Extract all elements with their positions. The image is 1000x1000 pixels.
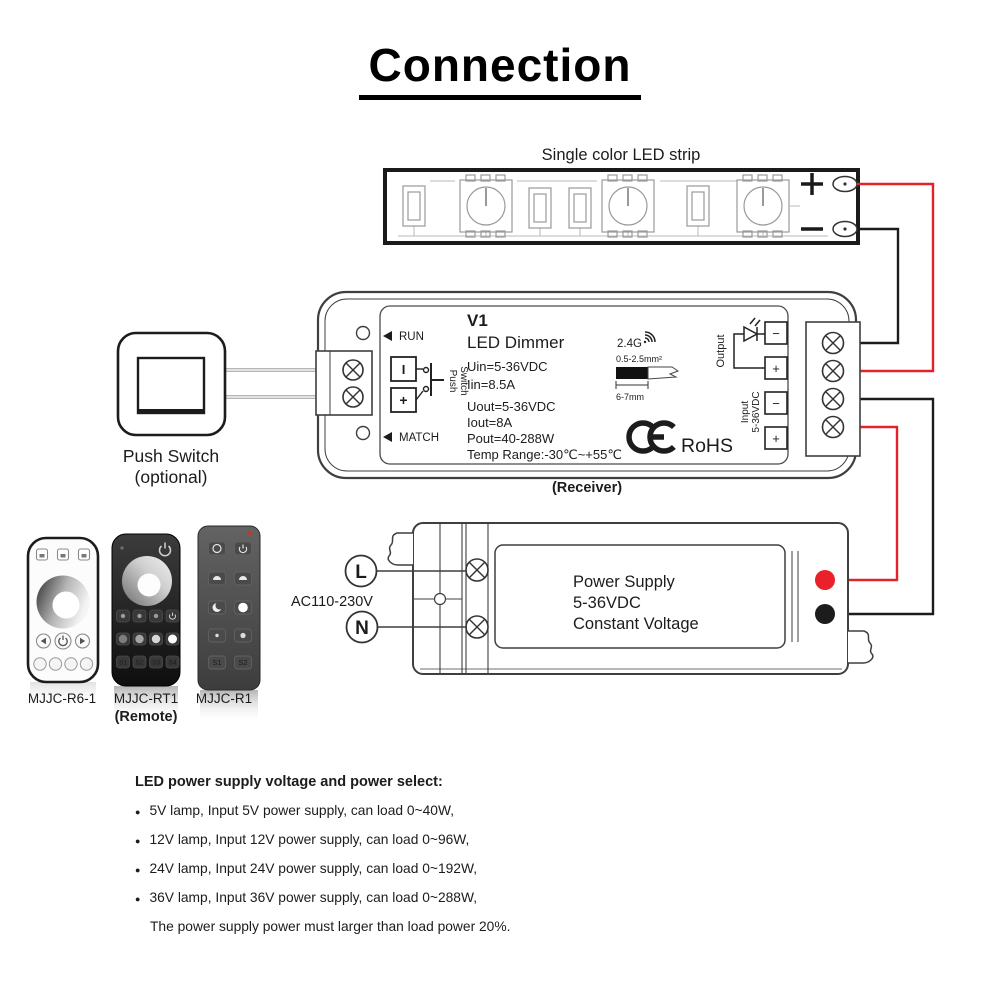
input-label: Input xyxy=(740,401,751,423)
bullet-icon: ● xyxy=(135,807,140,817)
notes-section: LED power supply voltage and power selec… xyxy=(135,774,755,934)
run-label: RUN xyxy=(399,331,424,343)
notes-heading: LED power supply voltage and power selec… xyxy=(135,774,755,790)
rohs-label: RoHS xyxy=(681,435,733,457)
notes-footer: The power supply power must larger than … xyxy=(150,919,755,934)
screw-terminal-icon xyxy=(343,360,363,380)
indicator-dot xyxy=(248,531,252,535)
switch-plus-label: + xyxy=(399,392,407,408)
note-text: 36V lamp, Input 36V power supply, can lo… xyxy=(149,890,477,905)
dim-wheel-center xyxy=(53,592,80,619)
screw-terminal-icon xyxy=(466,559,488,581)
note-text: 12V lamp, Input 12V power supply, can lo… xyxy=(149,832,469,847)
remote-r1-model: MJJC-R1 xyxy=(196,691,252,706)
mounting-hole xyxy=(357,427,370,440)
output-minus: − xyxy=(772,326,780,341)
bullet-icon: ● xyxy=(135,894,140,904)
full-brightness-icon xyxy=(238,603,248,613)
control-buttons xyxy=(37,633,90,649)
remote-rt1: S1 S2 S3 S4 MJJC-RT1 (Remote) xyxy=(112,534,180,725)
note-item: ● 24V lamp, Input 24V power supply, can … xyxy=(135,861,755,876)
spec-iin: Iin=8.5A xyxy=(467,377,515,392)
ps-line3: Constant Voltage xyxy=(573,615,699,633)
remote-r6-1-model: MJJC-R6-1 xyxy=(28,691,96,706)
remote-r6-1: MJJC-R6-1 xyxy=(28,538,98,706)
strain-relief-icon xyxy=(388,533,413,565)
led-strip-label: Single color LED strip xyxy=(542,146,701,164)
output-label: Output xyxy=(715,334,727,367)
wire-gauge-label: 0.5-2.5mm² xyxy=(616,354,662,364)
note-text: 5V lamp, Input 5V power supply, can load… xyxy=(149,803,454,818)
rf-label: 2.4G xyxy=(617,338,642,350)
dc-plus-dot xyxy=(815,570,835,590)
input-voltage-label: 5-36VDC xyxy=(751,391,762,432)
receiver-caption: (Receiver) xyxy=(552,480,622,496)
rt1-key-s2: S2 xyxy=(136,660,144,667)
note-text: 24V lamp, Input 24V power supply, can lo… xyxy=(149,861,477,876)
bullet-icon: ● xyxy=(135,836,140,846)
dim-wheel-center xyxy=(138,574,161,597)
note-item: ● 12V lamp, Input 12V power supply, can … xyxy=(135,832,755,847)
push-switch: Push Switch (optional) xyxy=(118,333,344,487)
switch-push-label: Push xyxy=(447,370,458,393)
receiver: RUN MATCH I + Push Switch V1 LED Dimmer xyxy=(316,292,860,496)
page: Connection Single color LED strip xyxy=(0,0,1000,1000)
dot-icon xyxy=(240,633,245,638)
receiver-product: LED Dimmer xyxy=(467,333,565,352)
spec-pout: Pout=40-288W xyxy=(467,431,555,446)
led-strip: Single color LED strip xyxy=(385,146,858,243)
bullet-icon: ● xyxy=(135,865,140,875)
live-label: L xyxy=(355,562,367,583)
wire-sheath-icon xyxy=(648,367,678,379)
input-minus: − xyxy=(772,396,780,411)
stripped-wire-icon xyxy=(616,367,648,379)
note-item: ● 36V lamp, Input 36V power supply, can … xyxy=(135,890,755,905)
screw-terminal-icon xyxy=(823,333,844,354)
remote-r1: S1 S2 MJJC-R1 xyxy=(196,526,260,706)
neutral-label: N xyxy=(355,618,369,639)
switch-i-label: I xyxy=(402,362,406,377)
spec-temp: Temp Range:-30℃~+55℃ xyxy=(467,447,622,462)
strip-length-label: 6-7mm xyxy=(616,392,644,402)
mounting-hole xyxy=(357,327,370,340)
push-switch-button xyxy=(138,358,204,413)
screw-terminal-icon xyxy=(466,616,488,638)
ps-line1: Power Supply xyxy=(573,573,676,591)
ac-voltage-label: AC110-230V xyxy=(291,594,373,610)
spec-uin: Uin=5-36VDC xyxy=(467,359,548,374)
receiver-left-terminal xyxy=(316,351,372,415)
input-plus: + xyxy=(772,431,780,446)
push-switch-sublabel: (optional) xyxy=(135,467,208,487)
r1-key-s2: S2 xyxy=(238,658,247,667)
receiver-model: V1 xyxy=(467,311,488,330)
remotes: MJJC-R6-1 xyxy=(28,526,260,725)
dc-minus-dot xyxy=(815,604,835,624)
output-plus: + xyxy=(772,361,780,376)
remote-rt1-caption: (Remote) xyxy=(115,709,178,725)
rt1-key-s1: S1 xyxy=(119,660,127,667)
r1-key-s1: S1 xyxy=(212,658,221,667)
ps-line2: 5-36VDC xyxy=(573,594,641,612)
receiver-right-terminal xyxy=(806,322,860,456)
push-switch-label: Push Switch xyxy=(123,446,219,466)
screw-terminal-icon xyxy=(823,417,844,438)
spec-uout: Uout=5-36VDC xyxy=(467,399,556,414)
screw-terminal-icon xyxy=(343,387,363,407)
power-supply: Power Supply 5-36VDC Constant Voltage L … xyxy=(291,523,873,674)
rt1-key-s4: S4 xyxy=(169,660,177,667)
screw-terminal-icon xyxy=(823,389,844,410)
panel-hole xyxy=(435,594,446,605)
scene-buttons xyxy=(37,549,90,560)
indicator-dot xyxy=(120,546,123,549)
strain-relief-icon xyxy=(848,631,873,663)
note-item: ● 5V lamp, Input 5V power supply, can lo… xyxy=(135,803,755,818)
remote-rt1-model: MJJC-RT1 xyxy=(114,691,178,706)
dot-icon xyxy=(215,634,218,637)
screw-terminal-icon xyxy=(823,361,844,382)
spec-iout: Iout=8A xyxy=(467,415,513,430)
rt1-key-s3: S3 xyxy=(152,660,160,667)
match-label: MATCH xyxy=(399,432,439,444)
